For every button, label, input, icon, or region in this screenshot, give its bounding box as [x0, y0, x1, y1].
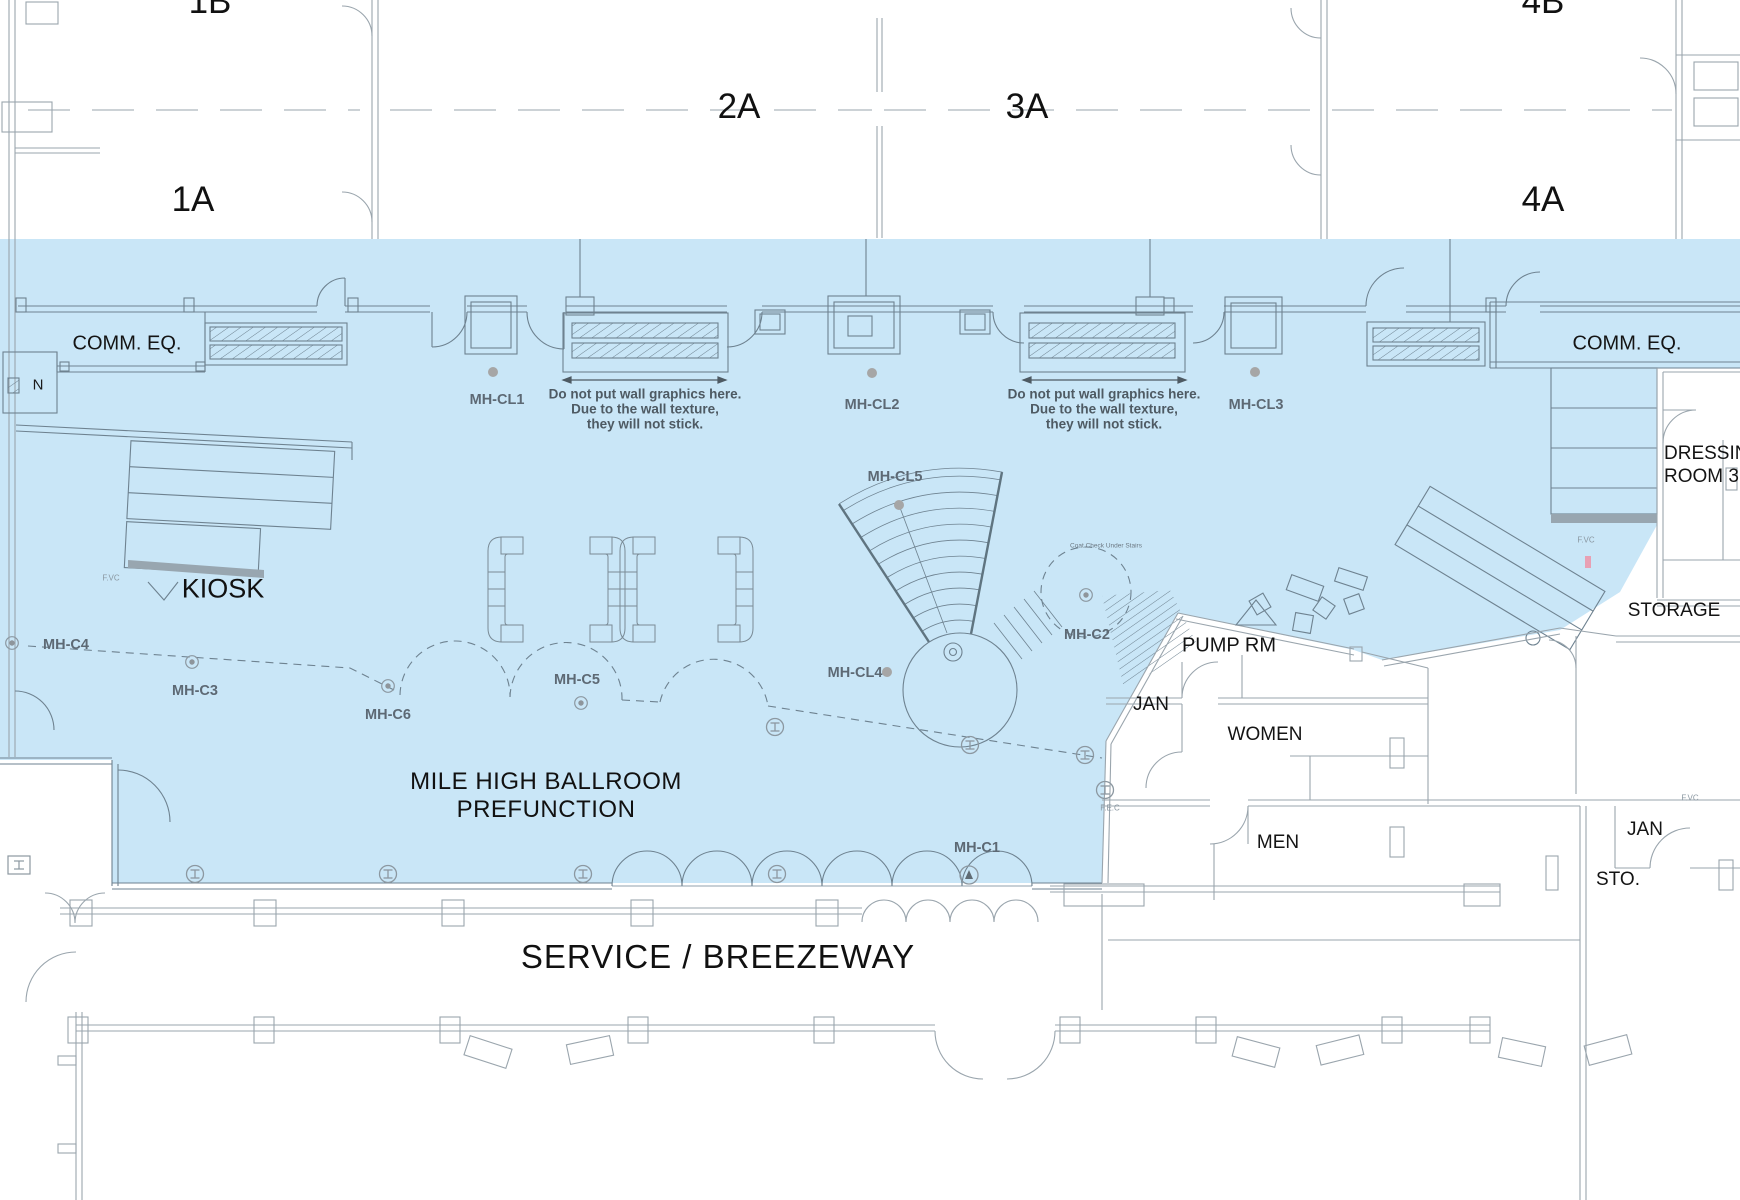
room-label-jan-right: JAN [1627, 819, 1663, 841]
floorplan-canvas: 1B 4B 2A 3A 1A 4A COMM. EQ. COMM. EQ. N … [0, 0, 1740, 1200]
marker-label-mh-c6: MH-C6 [365, 707, 411, 723]
note-line-1: Do not put wall graphics here. [1008, 387, 1201, 402]
note-wall-graphics-right: Do not put wall graphics here. Due to th… [1008, 387, 1201, 432]
prefunction-line-2: PREFUNCTION [457, 796, 636, 823]
marker-dot-mh-cl4 [882, 667, 892, 677]
room-label-kiosk: KIOSK [182, 574, 265, 605]
marker-dot-mh-cl5 [894, 500, 904, 510]
hall-label-4b: 4B [1522, 0, 1565, 22]
marker-label-mh-c3: MH-C3 [172, 683, 218, 699]
room-label-dressing-room-3: DRESSING ROOM 3 [1664, 442, 1740, 488]
wall-column [8, 856, 30, 874]
dressing-line-2: ROOM 3 [1664, 466, 1739, 487]
marker-label-mh-cl5: MH-CL5 [868, 469, 923, 485]
marker-label-mh-cl3: MH-CL3 [1229, 397, 1284, 413]
note-line-3: they will not stick. [1046, 417, 1162, 432]
marker-label-mh-c4: MH-C4 [43, 637, 89, 653]
room-label-comm-eq-right: COMM. EQ. [1573, 333, 1682, 356]
dressing-line-1: DRESSING [1664, 443, 1740, 464]
marker-dot-mh-cl3 [1250, 367, 1260, 377]
compass-label: N [33, 377, 44, 394]
room-label-jan-left: JAN [1133, 694, 1169, 716]
safety-label-fvc-1: F.VC [102, 574, 119, 583]
note-line-3: they will not stick. [587, 417, 703, 432]
safety-label-fvc-2: F.VC [1577, 536, 1594, 545]
room-label-prefunction: MILE HIGH BALLROOM PREFUNCTION [410, 768, 682, 824]
marker-label-mh-c1: MH-C1 [954, 840, 1000, 856]
room-label-women: WOMEN [1228, 724, 1303, 746]
room-label-storage: STORAGE [1628, 600, 1721, 622]
note-wall-graphics-left: Do not put wall graphics here. Due to th… [549, 387, 742, 432]
room-label-comm-eq-left: COMM. EQ. [73, 333, 182, 356]
marker-label-mh-c2: MH-C2 [1064, 627, 1110, 643]
marker-label-mh-cl4: MH-CL4 [828, 665, 883, 681]
room-label-service-breezeway: SERVICE / BREEZEWAY [521, 938, 915, 976]
marker-dot-mh-cl1 [488, 367, 498, 377]
note-line-2: Due to the wall texture, [1030, 402, 1178, 417]
hall-label-4a: 4A [1522, 180, 1565, 220]
marker-label-mh-cl2: MH-CL2 [845, 397, 900, 413]
hall-label-1b: 1B [189, 0, 232, 22]
room-label-pump-rm: PUMP RM [1182, 635, 1276, 658]
room-label-men: MEN [1257, 832, 1299, 854]
service-corridor-walls [26, 884, 1632, 1200]
safety-label-fec: F.E.C [1100, 804, 1120, 813]
note-line-1: Do not put wall graphics here. [549, 387, 742, 402]
room-label-sto: STO. [1596, 869, 1640, 891]
note-line-2: Due to the wall texture, [571, 402, 719, 417]
hall-label-3a: 3A [1006, 87, 1049, 127]
note-coat-check: Coat Check Under Stairs [1070, 543, 1142, 550]
marker-label-mh-cl1: MH-CL1 [470, 392, 525, 408]
prefunction-line-1: MILE HIGH BALLROOM [410, 768, 682, 795]
hall-label-1a: 1A [172, 180, 215, 220]
hall-label-2a: 2A [718, 87, 761, 127]
marker-label-mh-c5: MH-C5 [554, 672, 600, 688]
safety-label-fvc-3: F.VC [1681, 794, 1698, 803]
marker-dot-mh-cl2 [867, 368, 877, 378]
